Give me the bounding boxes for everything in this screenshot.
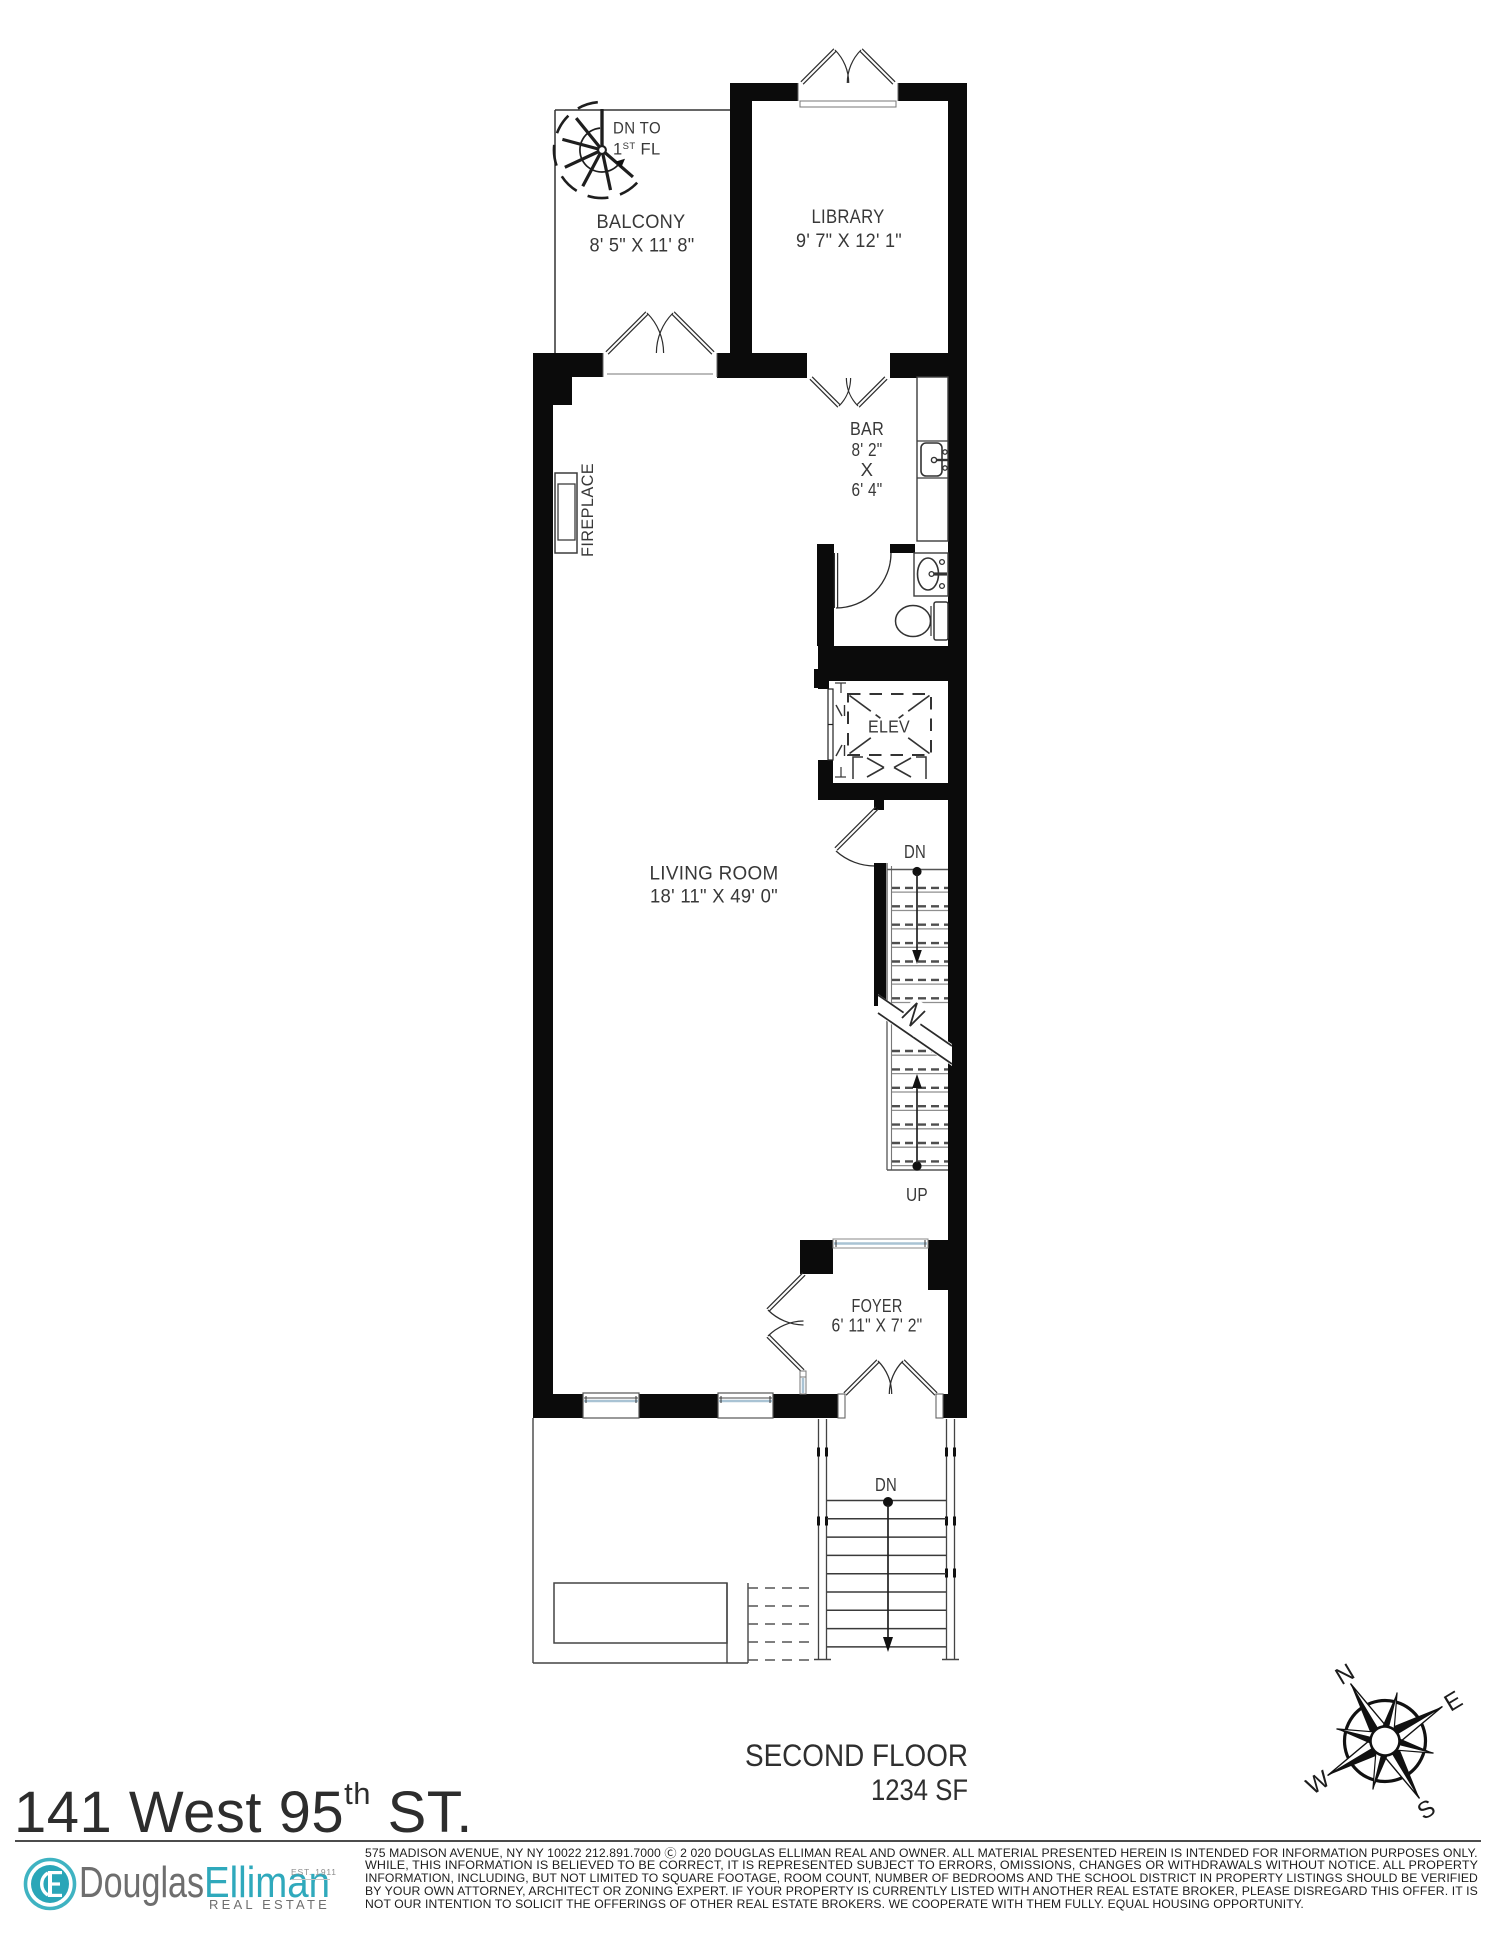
- svg-text:9' 7" X 12' 1": 9' 7" X 12' 1": [796, 231, 902, 252]
- svg-text:1234 SF: 1234 SF: [871, 1774, 968, 1807]
- svg-text:N: N: [1331, 1659, 1360, 1691]
- svg-text:UP: UP: [906, 1184, 928, 1205]
- svg-text:Douglas: Douglas: [79, 1858, 204, 1907]
- svg-text:X: X: [861, 459, 874, 480]
- svg-text:LIBRARY: LIBRARY: [812, 207, 885, 228]
- svg-text:BALCONY: BALCONY: [597, 212, 686, 233]
- svg-text:DN TO: DN TO: [613, 120, 661, 138]
- svg-text:BAR: BAR: [850, 418, 884, 439]
- svg-text:S: S: [1413, 1794, 1441, 1825]
- svg-text:FOYER: FOYER: [852, 1295, 903, 1316]
- svg-text:8' 5" X 11' 8": 8' 5" X 11' 8": [590, 236, 695, 257]
- svg-text:18' 11" X 49' 0": 18' 11" X 49' 0": [650, 887, 778, 908]
- svg-text:6' 4": 6' 4": [852, 479, 883, 500]
- svg-text:DN: DN: [904, 841, 926, 862]
- svg-text:LIVING ROOM: LIVING ROOM: [650, 863, 779, 885]
- svg-text:EST. 1911: EST. 1911: [291, 1867, 337, 1877]
- svg-text:W: W: [1301, 1765, 1335, 1800]
- svg-text:FIREPLACE: FIREPLACE: [579, 463, 597, 557]
- svg-text:8' 2": 8' 2": [852, 439, 883, 460]
- svg-text:DN: DN: [875, 1474, 897, 1495]
- svg-text:6' 11" X 7' 2": 6' 11" X 7' 2": [832, 1316, 923, 1336]
- svg-text:E: E: [1440, 1686, 1468, 1717]
- svg-text:1ST FL: 1ST FL: [613, 141, 661, 159]
- svg-text:ELEV: ELEV: [868, 717, 910, 737]
- svg-text:SECOND FLOOR: SECOND FLOOR: [745, 1737, 968, 1773]
- svg-text:REAL ESTATE: REAL ESTATE: [209, 1897, 330, 1912]
